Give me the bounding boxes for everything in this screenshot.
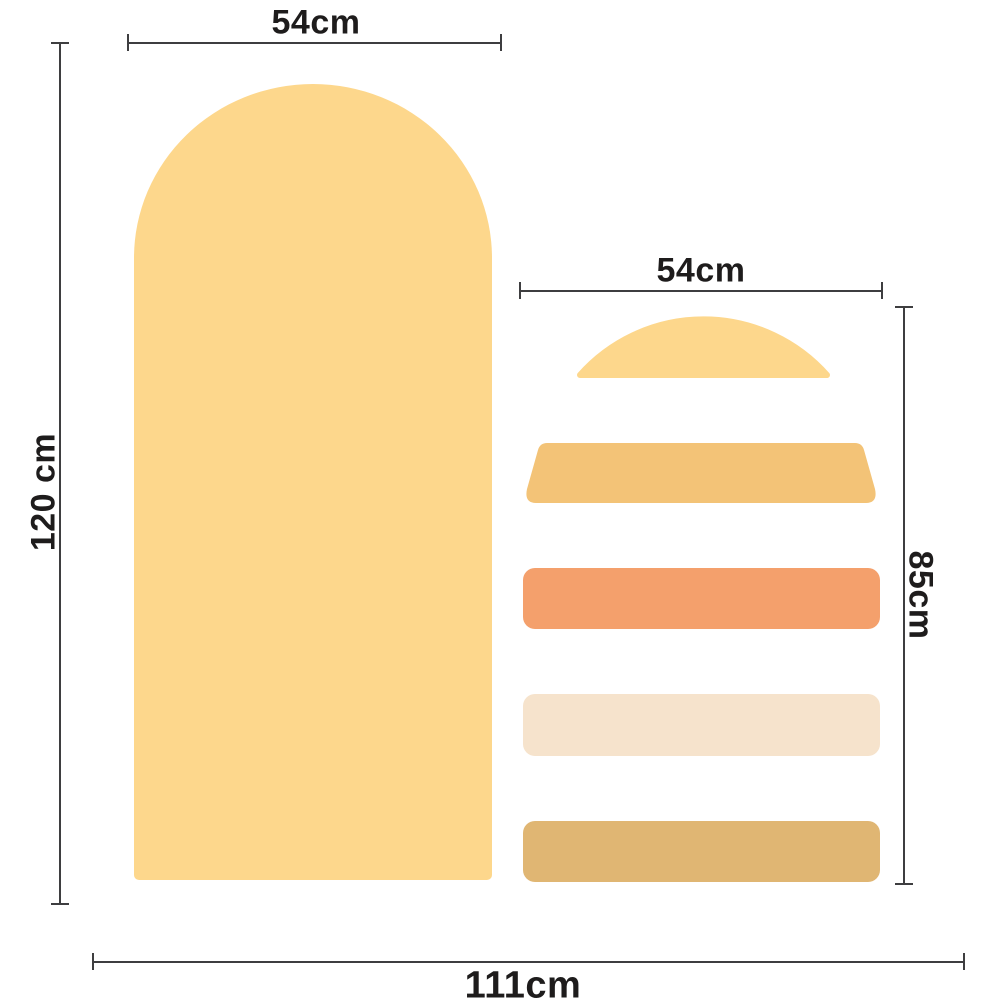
pieces-width-label: 54cm — [657, 252, 746, 291]
measure-tick — [51, 42, 69, 44]
piece-bar-cream — [523, 694, 880, 756]
piece-bar-tan — [523, 821, 880, 882]
measure-tick — [895, 883, 913, 885]
measure-tick — [92, 953, 94, 970]
piece-dome-top-shape — [580, 319, 827, 375]
measure-tick — [500, 34, 502, 51]
measure-tick — [881, 282, 883, 299]
pieces-height-label: 85cm — [901, 551, 940, 640]
measure-tick — [127, 34, 129, 51]
arch-panel — [134, 84, 492, 880]
arch-height-label: 120 cm — [25, 433, 64, 551]
measure-tick — [895, 306, 913, 308]
piece-slanted-band-shape — [526, 443, 875, 503]
arch-width-label: 54cm — [272, 4, 361, 43]
piece-slanted-band — [525, 443, 877, 503]
piece-bar-orange — [523, 568, 880, 629]
dimension-diagram: 54cm 120 cm 111cm 54cm 85cm — [0, 0, 1000, 1000]
measure-tick — [963, 953, 965, 970]
total-width-label: 111cm — [465, 965, 582, 1000]
piece-dome-top — [576, 315, 831, 378]
measure-line — [93, 961, 965, 963]
measure-tick — [51, 903, 69, 905]
measure-tick — [519, 282, 521, 299]
